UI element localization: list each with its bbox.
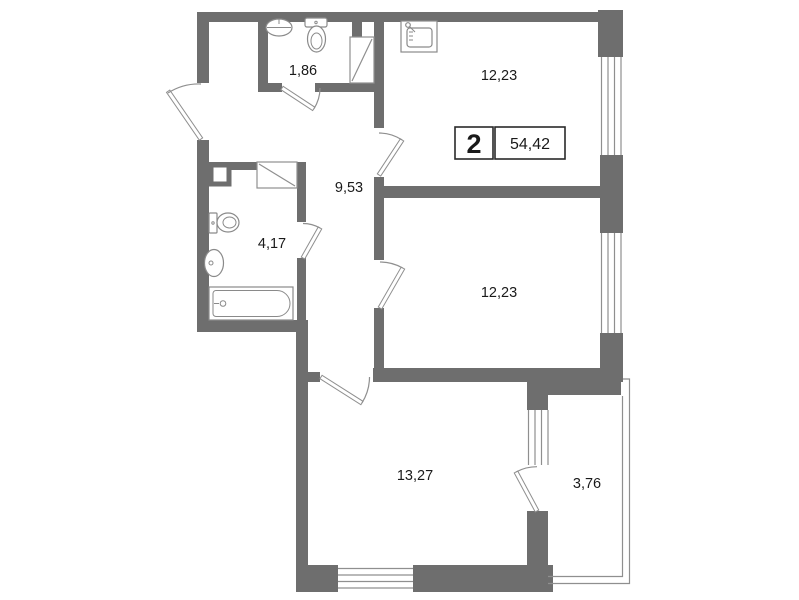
bathtub-icon [209,287,293,320]
wall-segment [197,12,603,22]
balcony-door [514,467,539,512]
balcony-window [529,410,549,465]
wall-segment [197,170,209,332]
summary-total-area: 54,42 [510,136,550,153]
wall-segment [527,382,548,410]
label-bedroom-area: 12,23 [481,285,517,301]
label-balcony-area: 3,76 [573,476,601,492]
wall-segment [296,332,308,568]
label-hallway-area: 9,53 [335,180,363,196]
wc-toilet-icon [305,18,327,52]
wall-segment [374,186,600,198]
wall-segment [258,83,282,92]
bathroom-sink-icon [205,250,224,277]
wall-segment [374,12,384,128]
wall-segment [373,368,623,382]
wall-segment [197,320,308,332]
wc-door [281,86,320,110]
summary-box: 2 54,42 [455,127,565,159]
entrance-door [167,84,203,140]
label-kitchen-area: 12,23 [481,68,517,84]
closet-bathroom [257,162,297,188]
living-room-door [320,375,370,404]
bathroom-toilet-icon [209,213,239,233]
floorplan-canvas: 2 54,42 1,86 12,23 9,53 4,17 12,23 13,27… [0,0,799,600]
bathroom-door [301,224,321,259]
wall-segment [600,155,623,233]
label-wc-area: 1,86 [289,63,317,79]
wall-segment [374,308,384,382]
wc-sink-icon [266,19,292,36]
kitchen-window [602,57,622,155]
kitchen-sink-icon [401,21,437,52]
label-bathroom-area: 4,17 [258,236,286,252]
wall-segment [413,565,553,592]
wall-segment [315,83,374,92]
floor-plan-svg: 2 54,42 1,86 12,23 9,53 4,17 12,23 13,27… [0,0,799,600]
wall-segment [598,10,623,57]
label-living-room-area: 13,27 [397,468,433,484]
bedroom-door [378,262,404,309]
wall-segment [352,12,362,37]
wall-segment [527,511,548,568]
summary-rooms-count: 2 [466,129,481,159]
wall-segment [258,12,268,83]
bedroom-window [602,233,622,333]
wall-segment [296,565,338,592]
vent-shaft [211,165,229,184]
wall-segment [308,372,320,382]
wall-segment [548,382,621,395]
wall-segment [197,12,209,83]
closet-hall [350,37,374,83]
wall-segment [297,258,306,332]
living-room-window [338,569,413,589]
kitchen-door [377,133,403,176]
wall-segment [297,162,306,222]
